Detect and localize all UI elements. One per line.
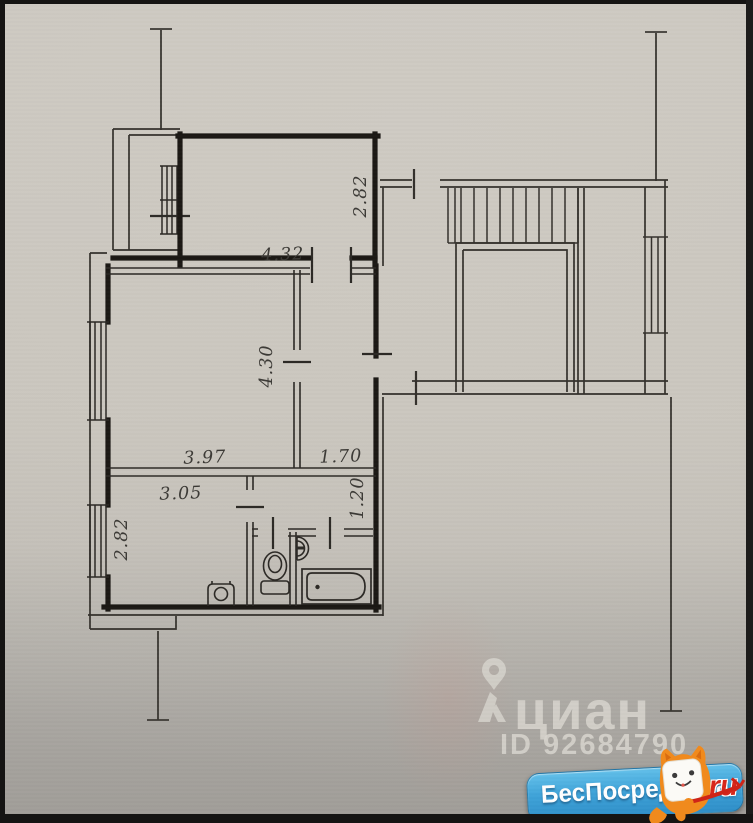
dim-living-width: 4.32 [260, 244, 305, 266]
balcony [113, 129, 180, 250]
window-icon [160, 166, 179, 234]
outer-walls [104, 134, 379, 610]
bathtub-icon [302, 569, 371, 604]
dim-corridor-depth: 1.20 [348, 477, 368, 520]
dim-living-bottom-width: 3.97 [183, 447, 227, 468]
window-icon [643, 237, 668, 333]
scan-edge-left [0, 0, 5, 823]
window-icon [87, 505, 109, 577]
door-tick-icon [312, 247, 351, 283]
living-top-partition [106, 268, 376, 274]
scanned-floor-plan-photo: 4.32 2.82 4.30 3.97 1.70 3.05 1.20 2.82 … [0, 0, 753, 823]
stairs-icon [448, 188, 578, 243]
door-tick-icon [414, 169, 416, 405]
dim-bedroom-height: 2.82 [351, 175, 371, 219]
window-icon [87, 322, 109, 420]
orange-cat-mascot-icon [627, 742, 748, 823]
reference-lines [147, 29, 682, 720]
stove-icon [208, 581, 234, 606]
interior-partitions [106, 270, 376, 606]
sink-icon [297, 537, 309, 560]
dim-hall-width: 1.70 [319, 446, 363, 467]
stairwell-block [380, 180, 668, 394]
scan-edge-right [746, 0, 753, 823]
dim-kitchen-depth: 2.82 [112, 518, 132, 562]
scan-edge-top [0, 0, 753, 4]
dim-kitchen-width: 3.05 [159, 483, 203, 504]
toilet-icon [261, 552, 289, 594]
floor-plan-drawing: 4.32 2.82 4.30 3.97 1.70 3.05 1.20 2.82 [0, 0, 753, 823]
dim-living-depth: 4.30 [257, 345, 277, 389]
